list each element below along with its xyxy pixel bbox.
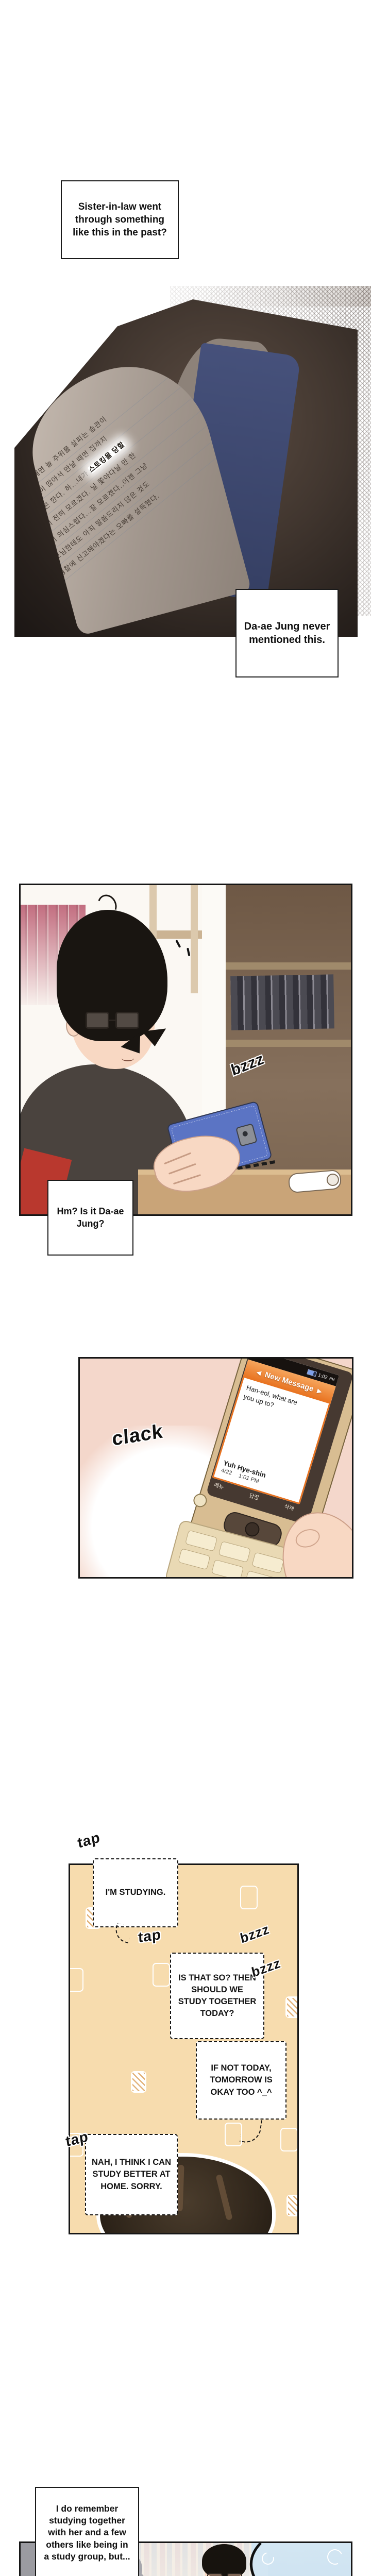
phone-pattern-square [69,1968,83,1992]
bookcase-board [226,962,352,970]
glasses-lens [207,2573,223,2576]
webtoon-page: Sister-in-law went through something lik… [0,0,371,2576]
chat-bubble-im-studying: I'M STUDYING. [93,1858,178,1927]
fingernail [293,1526,322,1550]
bubble-text: I'M STUDYING. [106,1887,166,1899]
chat-bubble-tomorrow-okay: IF NOT TODAY, TOMORROW IS OKAY TOO ^_^ [196,2041,286,2120]
caption-text: Hm? Is it Da-ae Jung? [55,1206,126,1230]
book-spines [230,974,334,1030]
panel-library-scene [19,884,352,1216]
open-diary: 밤 늦게 다닐 때면 늘 주위를 살피는 습관이 오빠도 걱정이 많아서 만날 … [27,314,317,637]
phone-pattern-square [131,2071,146,2093]
glasses-lens [86,1012,109,1029]
glasses [86,1012,139,1029]
keypad-key[interactable] [211,1560,244,1579]
caption-hm-is-it-daae: Hm? Is it Da-ae Jung? [47,1180,133,1256]
bubble-text: NAH, I THINK I CAN STUDY BETTER AT HOME.… [91,2157,172,2192]
sfx-tap: tap [76,1829,102,1852]
caption-text: Da-ae Jung never mentioned this. [243,620,331,647]
finger-line [164,1153,191,1164]
motion-tick [187,948,191,956]
phone-pattern-square [280,2128,298,2151]
status-ampm: PM [329,1377,335,1382]
bubble-text: IF NOT TODAY, TOMORROW IS OKAY TOO ^_^ [202,2062,280,2098]
shelf-post [191,885,198,993]
glasses-lens [227,2573,242,2576]
next-arrow-icon[interactable]: ▶ [316,1387,323,1395]
caption-daae-never-mentioned: Da-ae Jung never mentioned this. [235,589,339,677]
vest-man-glasses [207,2573,242,2576]
panel-diary-scene: 밤 늦게 다닐 때면 늘 주위를 살피는 습관이 오빠도 걱정이 많아서 만날 … [0,286,371,637]
sfx-tap: tap [138,1926,162,1946]
keypad-key[interactable] [251,1552,284,1573]
phone-pattern-square [240,1886,258,1909]
keypad-key[interactable] [185,1530,217,1552]
bubble-text: IS THAT SO? THEN SHOULD WE STUDY TOGETHE… [176,1972,258,2020]
bookcase-board [226,1040,352,1047]
caption-text: I do remember studying together with her… [42,2503,132,2562]
panel-flip-phone-scene: clack 1:02 PM ◀ New Message ▶ Han-eol, w… [78,1357,353,1579]
glasses-lens [115,1012,139,1029]
phone-pattern-square [225,2123,242,2146]
keypad-key[interactable] [218,1541,251,1563]
keypad-key[interactable] [178,1548,210,1570]
phone-pattern-square [153,1963,170,1987]
status-time: 1:02 [317,1372,328,1381]
battery-icon [307,1369,317,1377]
finger-line [168,1163,196,1175]
caption-sister-in-law: Sister-in-law went through something lik… [61,180,179,259]
glasses-bridge [109,1020,115,1022]
finger-line [173,1174,201,1184]
caption-study-group: I do remember studying together with her… [35,2487,139,2576]
prev-arrow-icon[interactable]: ◀ [256,1368,262,1376]
chat-bubble-study-at-home: NAH, I THINK I CAN STUDY BETTER AT HOME.… [85,2134,178,2215]
phone-clasp [235,1123,258,1147]
phone-pattern-square [286,2195,299,2216]
hair-streak [215,2174,232,2221]
motion-tick [176,940,181,948]
haneol-mouth [122,1055,134,1061]
caption-text: Sister-in-law went through something lik… [68,200,172,239]
phone-pattern-square [285,1996,299,2018]
